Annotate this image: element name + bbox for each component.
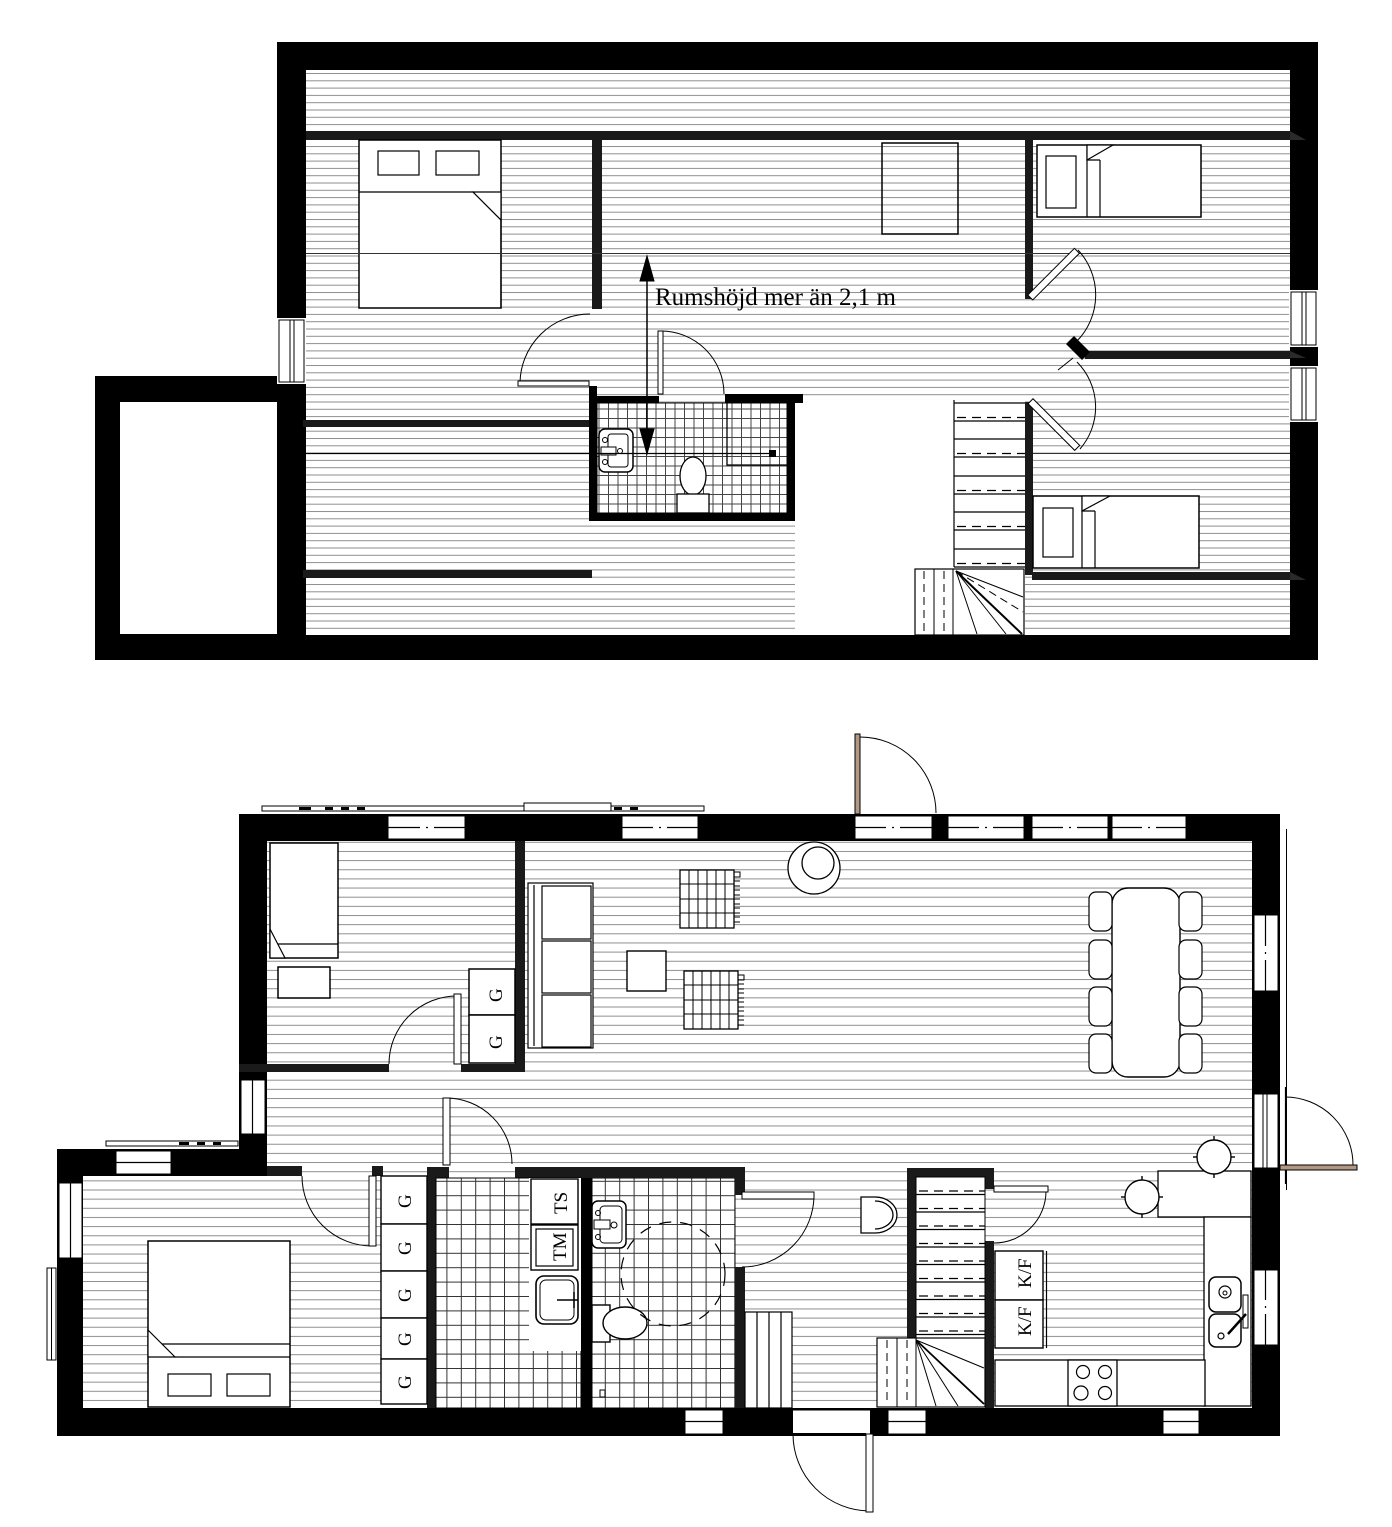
- svg-text:G: G: [395, 1241, 416, 1255]
- svg-text:G: G: [486, 1035, 507, 1049]
- svg-text:Rumshöjd mer än 2,1 m: Rumshöjd mer än 2,1 m: [655, 284, 897, 311]
- svg-text:K/F: K/F: [1015, 1306, 1036, 1336]
- svg-text:G: G: [395, 1332, 416, 1346]
- svg-text:G: G: [395, 1375, 416, 1389]
- svg-text:TM: TM: [550, 1232, 571, 1261]
- svg-text:G: G: [486, 988, 507, 1002]
- svg-text:G: G: [395, 1194, 416, 1208]
- svg-text:G: G: [395, 1288, 416, 1302]
- svg-text:K/F: K/F: [1015, 1258, 1036, 1288]
- svg-text:TS: TS: [551, 1192, 572, 1214]
